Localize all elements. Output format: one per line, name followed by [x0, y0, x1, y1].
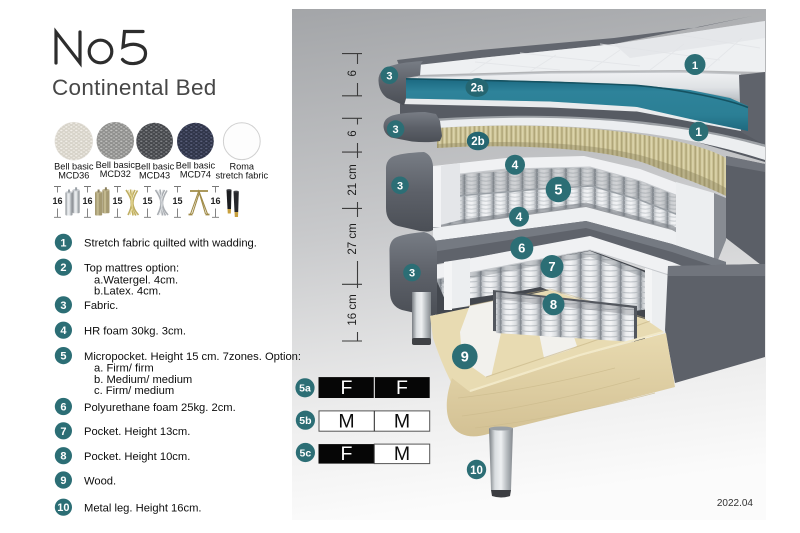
- svg-text:Pocket. Height 13cm.: Pocket. Height 13cm.: [84, 426, 190, 438]
- svg-text:3: 3: [409, 268, 415, 280]
- svg-text:6: 6: [518, 241, 525, 256]
- svg-text:HR foam 30kg. 3cm.: HR foam 30kg. 3cm.: [84, 326, 186, 338]
- svg-text:10: 10: [57, 502, 69, 514]
- svg-text:5b: 5b: [299, 415, 311, 427]
- svg-text:15: 15: [142, 196, 152, 206]
- svg-text:MCD43: MCD43: [139, 171, 170, 181]
- svg-text:Pocket. Height 10cm.: Pocket. Height 10cm.: [84, 451, 190, 463]
- svg-text:5a: 5a: [299, 383, 311, 395]
- svg-text:M: M: [394, 443, 410, 465]
- svg-text:b.Latex. 4cm.: b.Latex. 4cm.: [94, 286, 161, 298]
- svg-text:2b: 2b: [471, 136, 484, 148]
- svg-text:Metal leg. Height 16cm.: Metal leg. Height 16cm.: [84, 503, 202, 515]
- svg-text:15: 15: [172, 196, 182, 206]
- svg-text:a. Firm/ firm: a. Firm/ firm: [94, 363, 154, 375]
- svg-text:Micropocket. Height 15 cm. 7zo: Micropocket. Height 15 cm. 7zones. Optio…: [84, 351, 301, 363]
- svg-text:7: 7: [60, 426, 66, 438]
- svg-text:F: F: [396, 377, 408, 399]
- svg-text:1: 1: [692, 60, 698, 72]
- svg-text:stretch fabric: stretch fabric: [216, 171, 269, 181]
- svg-text:F: F: [341, 443, 353, 465]
- svg-text:Continental Bed: Continental Bed: [52, 75, 217, 100]
- svg-text:4: 4: [60, 325, 67, 337]
- svg-text:5: 5: [554, 183, 562, 199]
- svg-text:16: 16: [210, 196, 220, 206]
- svg-text:5c: 5c: [300, 447, 312, 459]
- svg-text:Fabric.: Fabric.: [84, 300, 118, 312]
- svg-text:8: 8: [60, 451, 66, 463]
- svg-text:Top mattres option:: Top mattres option:: [84, 263, 179, 275]
- svg-text:1: 1: [60, 237, 66, 249]
- svg-text:3: 3: [386, 70, 392, 82]
- svg-text:5: 5: [60, 351, 66, 363]
- svg-text:9: 9: [60, 475, 66, 487]
- svg-text:2a: 2a: [471, 83, 484, 95]
- svg-text:c. Firm/ medium: c. Firm/ medium: [94, 385, 174, 397]
- svg-text:27 cm: 27 cm: [347, 223, 359, 254]
- svg-text:3: 3: [60, 300, 66, 312]
- svg-text:4: 4: [516, 210, 523, 224]
- svg-text:Stretch fabric quilted with wa: Stretch fabric quilted with wadding.: [84, 238, 257, 250]
- svg-text:16: 16: [52, 196, 62, 206]
- svg-text:16 cm: 16 cm: [347, 294, 359, 325]
- svg-text:6: 6: [347, 70, 359, 76]
- svg-text:10: 10: [470, 465, 483, 477]
- svg-text:2022.04: 2022.04: [717, 498, 754, 509]
- svg-text:1: 1: [695, 125, 702, 139]
- svg-text:9: 9: [461, 350, 469, 366]
- svg-text:MCD36: MCD36: [58, 171, 89, 181]
- svg-text:MCD32: MCD32: [100, 169, 131, 179]
- svg-text:3: 3: [397, 180, 403, 192]
- svg-text:16: 16: [82, 196, 92, 206]
- svg-text:Wood.: Wood.: [84, 475, 116, 487]
- svg-text:MCD74: MCD74: [180, 170, 211, 180]
- svg-text:Polyurethane foam 25kg. 2cm.: Polyurethane foam 25kg. 2cm.: [84, 402, 236, 414]
- svg-text:4: 4: [512, 158, 519, 172]
- svg-text:21 cm: 21 cm: [347, 164, 359, 195]
- svg-text:8: 8: [550, 297, 557, 312]
- svg-text:6: 6: [60, 402, 66, 414]
- svg-text:15: 15: [112, 196, 122, 206]
- svg-text:F: F: [341, 377, 353, 399]
- svg-text:M: M: [338, 411, 354, 433]
- svg-text:3: 3: [393, 124, 399, 136]
- svg-text:M: M: [394, 411, 410, 433]
- svg-text:6: 6: [347, 130, 359, 136]
- svg-text:7: 7: [548, 259, 555, 274]
- svg-text:2: 2: [60, 262, 66, 274]
